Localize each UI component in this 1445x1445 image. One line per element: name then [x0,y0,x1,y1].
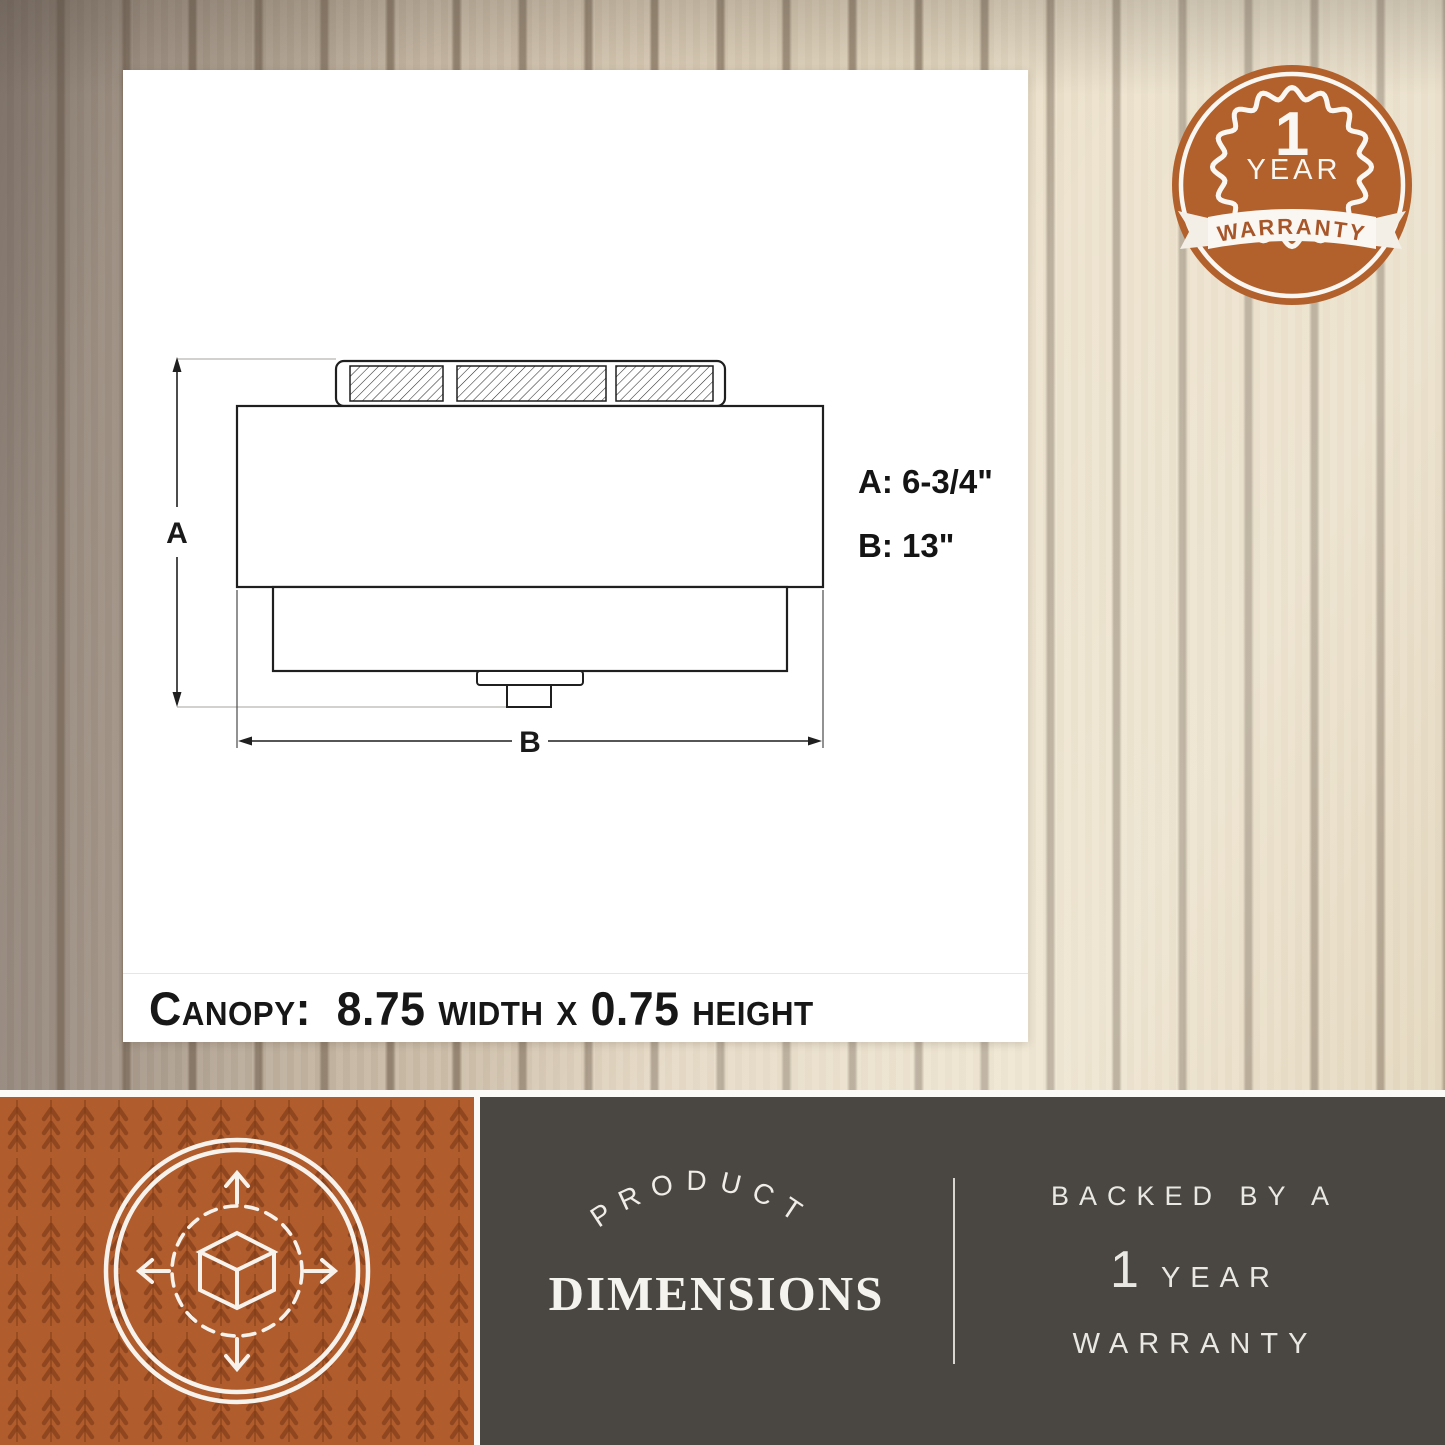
year-word: YEAR [1161,1262,1280,1295]
hatch-block-3 [616,366,713,401]
dim-a-letter: A [166,517,188,550]
dim-b-letter: B [519,726,541,759]
fixture-line-drawing: A B A: 6-3/4" B: 13" [123,70,1028,975]
spec-diagram-panel: A B A: 6-3/4" B: 13" Canopy: 8.75 width [123,70,1028,1042]
warranty-line: WARRANTY [1073,1328,1318,1361]
dim-b-value: B: 13" [858,527,954,564]
arrow-right-icon [808,737,822,746]
year-number: 1 [1110,1240,1139,1300]
dim-a-value: A: 6-3/4" [858,463,993,500]
badge-year: YEAR [1247,154,1342,186]
canopy-note-bar: Canopy: 8.75 width x 0.75 height [123,973,1028,1042]
hatch-block-2 [457,366,606,401]
dimensions-icon-tile [0,1097,474,1445]
diffuser [273,587,787,671]
arrow-left-icon [238,737,252,746]
backed-by-line: BACKED BY A [1051,1181,1339,1212]
warranty-badge: 1 YEAR WARRANTY [1170,63,1414,307]
finial-knob [507,685,551,707]
canopy-note: Canopy: 8.75 width x 0.75 height [149,981,814,1036]
drum-body [237,406,823,587]
dimensions-title: DIMENSIONS [480,1265,953,1322]
warranty-text-block: BACKED BY A 1 YEAR WARRANTY [955,1097,1445,1445]
product-dimensions-block: PRODUCT DIMENSIONS [480,1097,953,1445]
footer-band: PRODUCT DIMENSIONS BACKED BY A 1 YEAR WA… [480,1097,1445,1445]
product-infographic: A B A: 6-3/4" B: 13" Canopy: 8.75 width [0,0,1445,1445]
hatch-block-1 [350,366,443,401]
arrow-down-icon [173,692,182,707]
arched-product-text: PRODUCT [480,1119,953,1279]
finial-plate [477,671,583,685]
product-arc-label: PRODUCT [585,1165,818,1233]
one-year-line: 1 YEAR [1110,1240,1280,1300]
